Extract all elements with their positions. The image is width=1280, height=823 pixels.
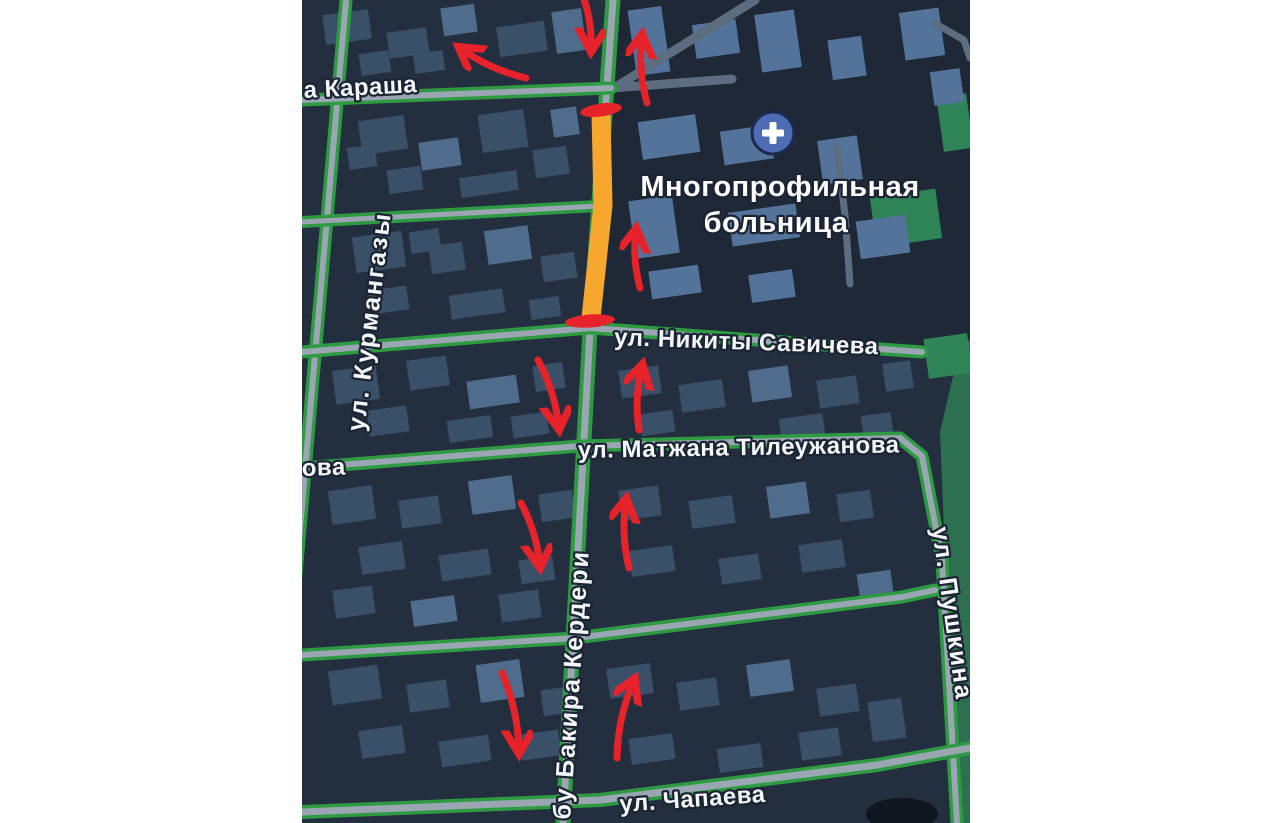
building <box>827 36 866 80</box>
building <box>550 106 580 137</box>
building <box>328 665 382 706</box>
building <box>532 146 570 178</box>
building <box>754 9 802 72</box>
building <box>766 481 810 518</box>
building <box>882 360 914 392</box>
annotated-map-screenshot: а Карашаул. Курмангазыбу Бакира Кердериу… <box>0 0 1280 823</box>
building <box>468 475 516 515</box>
building <box>406 679 450 712</box>
building <box>638 114 701 160</box>
building <box>867 698 906 742</box>
building <box>476 659 525 703</box>
building <box>718 553 761 584</box>
building <box>498 589 542 622</box>
hospital-icon <box>752 112 794 154</box>
building <box>816 683 860 716</box>
building <box>413 50 445 74</box>
map-canvas: а Карашаул. Курмангазыбу Бакира Кердериу… <box>302 0 970 823</box>
building <box>540 252 577 282</box>
building <box>478 109 529 153</box>
building <box>538 490 576 522</box>
hospital-label-line2: больница <box>704 207 849 239</box>
building <box>332 585 376 618</box>
building <box>529 296 561 320</box>
road-closure-highlight <box>591 113 603 318</box>
building <box>366 405 409 436</box>
building <box>418 137 462 170</box>
building <box>386 166 423 194</box>
building <box>836 490 874 522</box>
street-label-ova: ова <box>302 453 346 482</box>
building <box>639 410 676 437</box>
building <box>406 355 450 390</box>
building <box>930 68 964 106</box>
building <box>409 228 442 254</box>
building <box>899 7 945 60</box>
building <box>746 659 794 697</box>
building <box>748 365 792 402</box>
building <box>798 727 842 760</box>
building <box>484 225 532 265</box>
building <box>816 375 860 408</box>
street-label-tileuzhanova: ул. Матжана Тилеужанова <box>578 431 900 464</box>
building <box>551 8 587 54</box>
building <box>398 495 442 528</box>
building <box>347 144 378 170</box>
park-patch <box>923 333 970 379</box>
building <box>440 4 478 36</box>
map-svg: а Карашаул. Курмангазыбу Бакира Кердериу… <box>302 0 970 823</box>
building <box>676 677 720 710</box>
building <box>856 215 911 260</box>
hospital-label-line1: Многопрофильная <box>640 171 919 203</box>
building <box>328 485 376 525</box>
